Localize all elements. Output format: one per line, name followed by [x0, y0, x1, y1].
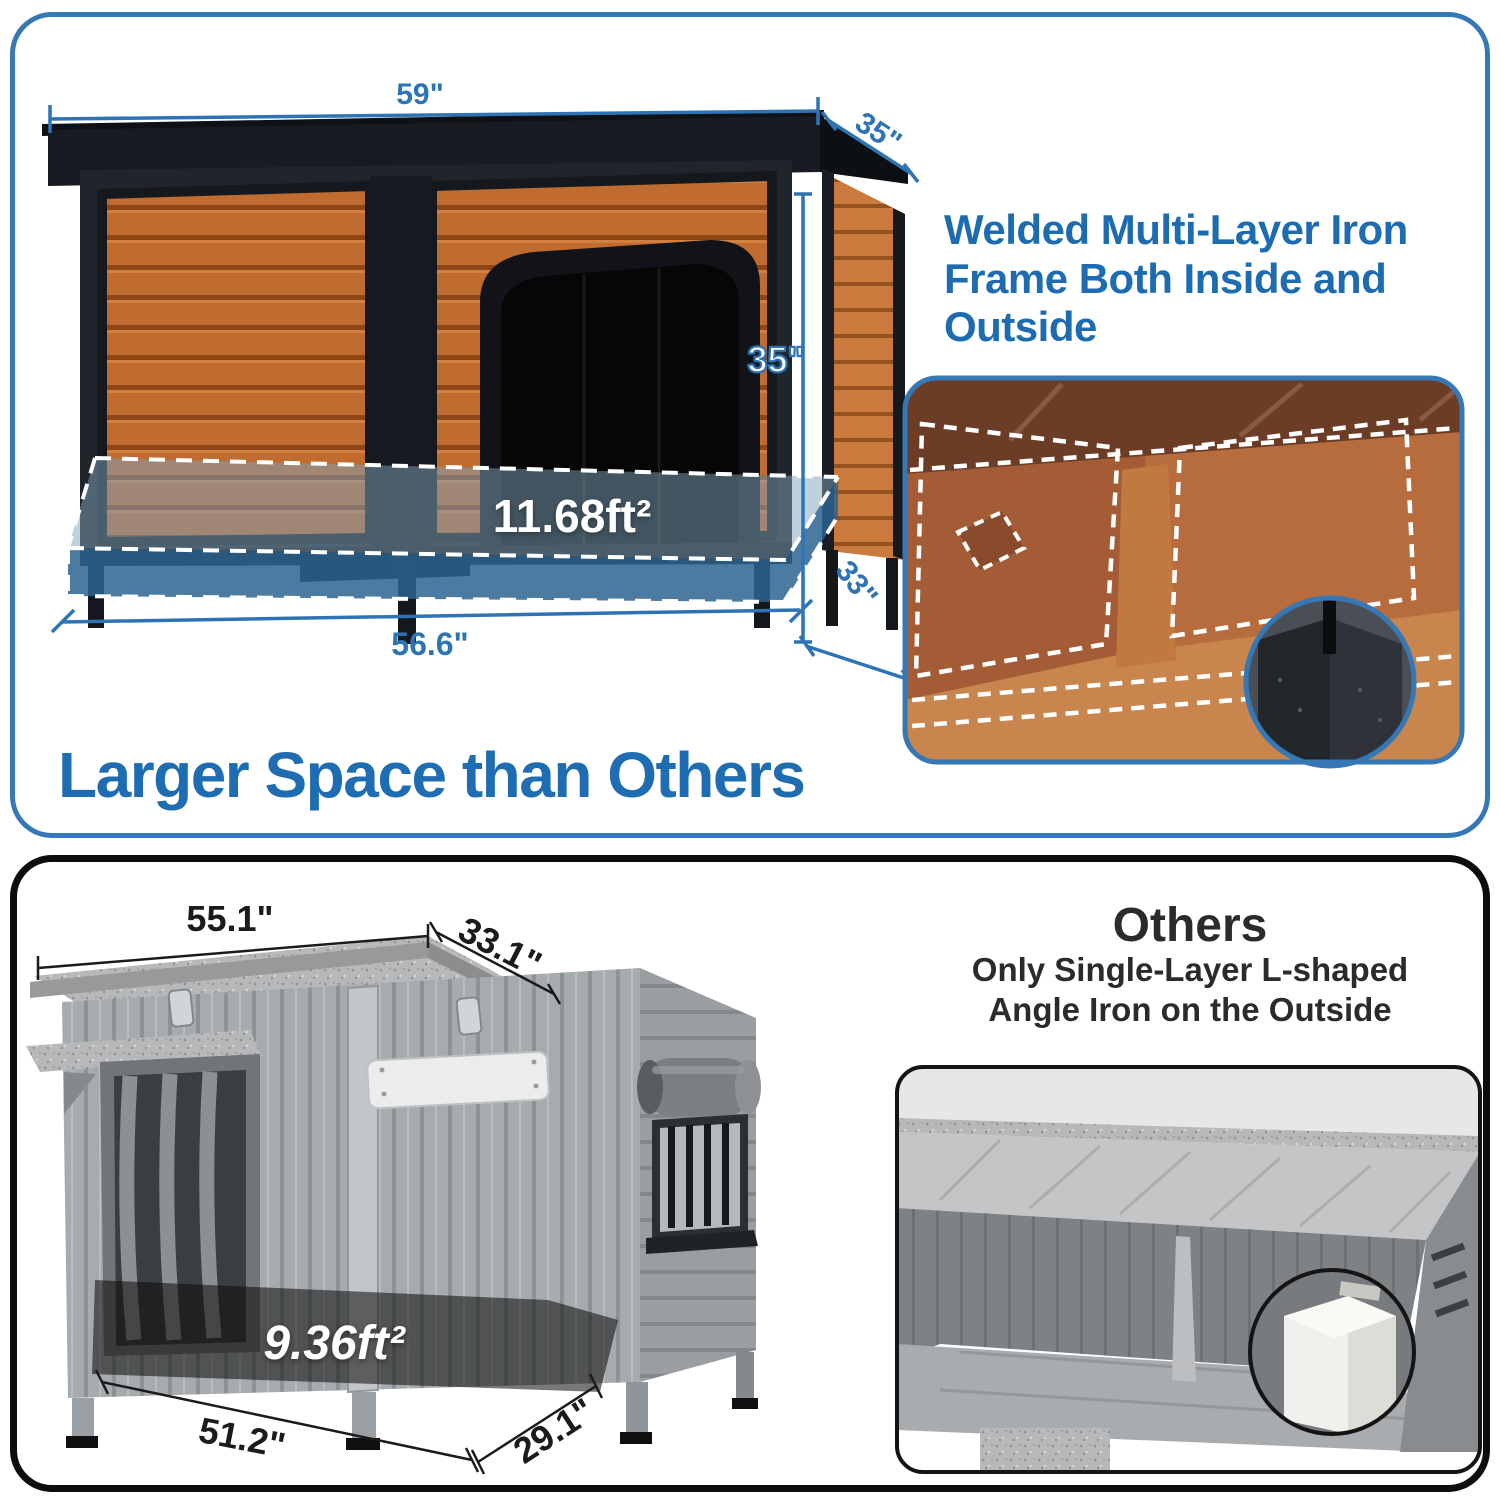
- dim-label-competitor-roof-width: 55.1": [186, 901, 273, 937]
- headline: Larger Space than Others: [58, 738, 804, 812]
- others-section: Others Only Single-Layer L-shaped Angle …: [890, 902, 1490, 1031]
- product-panel: [10, 12, 1490, 838]
- floor-area-label-product: 11.68ft²: [493, 493, 652, 539]
- others-subheading-line: Angle Iron on the Outside: [890, 990, 1490, 1030]
- others-heading: Others: [890, 902, 1490, 950]
- floor-area-label-competitor: 9.36ft²: [263, 1320, 404, 1368]
- product-comparison-infographic: 59" 35" 35" 33" 56.6" 11.68ft² Welded Mu…: [0, 0, 1500, 1499]
- others-subheading-line: Only Single-Layer L-shaped: [890, 950, 1490, 990]
- feature-heading: Welded Multi-Layer Iron Frame Both Insid…: [944, 206, 1484, 352]
- feature-heading-line: Welded Multi-Layer Iron: [944, 206, 1484, 255]
- dim-label-height: 35": [747, 342, 804, 378]
- dim-label-floor-width: 56.6": [391, 628, 468, 660]
- feature-heading-line: Outside: [944, 303, 1484, 352]
- dim-label-roof-width: 59": [396, 80, 444, 110]
- feature-heading-line: Frame Both Inside and: [944, 255, 1484, 304]
